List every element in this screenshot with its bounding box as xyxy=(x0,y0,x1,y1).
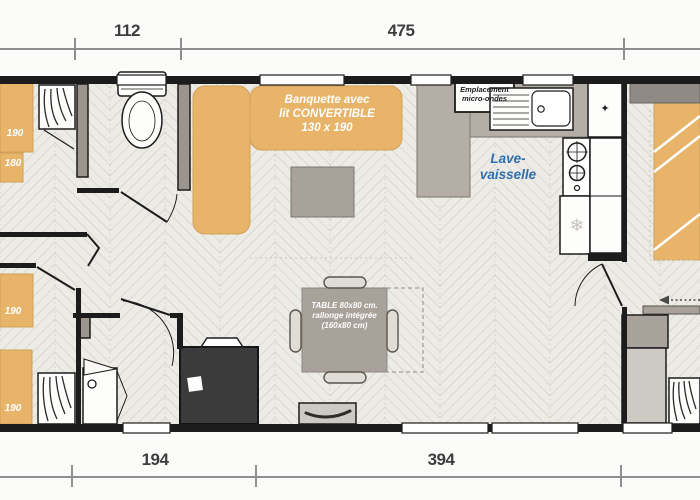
sofa-label-line1: Banquette avec xyxy=(252,93,402,107)
chair-top xyxy=(324,277,366,288)
bed-right xyxy=(654,103,700,260)
wall-top xyxy=(0,76,700,84)
window-bottom-2 xyxy=(623,423,672,433)
window-top-4 xyxy=(523,75,573,85)
window-top-1 xyxy=(117,75,166,85)
bed-mid-left-size: 190 xyxy=(0,306,26,318)
microwave-label: Emplacement micro-ondes xyxy=(456,85,513,104)
chair-left xyxy=(290,310,301,352)
wall-bottom xyxy=(0,424,700,432)
table-label-line2: rallonge intégrée xyxy=(303,311,386,321)
wall-bedroom1-bottom xyxy=(0,232,87,237)
bed-top-left-size: 190 xyxy=(0,128,30,140)
bathroom-wall-right xyxy=(178,84,190,190)
wall-bathroom-bottom xyxy=(77,188,119,193)
toilet-bowl xyxy=(122,92,162,148)
microwave-label-line1: Emplacement xyxy=(456,85,513,94)
window-bottom-1 xyxy=(123,423,170,433)
wall-bedroom-right-upper xyxy=(622,84,627,262)
dishwasher-label-line2: vaisselle xyxy=(453,167,563,183)
chair-bottom xyxy=(324,372,366,383)
stove xyxy=(563,138,590,196)
wall-kitchen-stub xyxy=(588,253,624,261)
wall-shower-right-stub xyxy=(177,313,183,349)
floorplan-drawing: ❄ ✦ xyxy=(0,0,700,500)
sofa-label: Banquette avec lit CONVERTIBLE 130 x 190 xyxy=(252,93,402,135)
entrance-door-panel-1 xyxy=(402,423,488,433)
bed-right-headboard xyxy=(630,82,700,103)
sparkle-icon: ✦ xyxy=(600,102,609,115)
bed-top-left xyxy=(0,78,33,152)
washbasin-unit xyxy=(83,368,117,424)
bed-mid-left xyxy=(0,274,33,327)
chair-right xyxy=(387,310,398,352)
window-top-2 xyxy=(260,75,344,85)
bedroom-right-cabinet xyxy=(622,348,666,423)
wall-bedroom2-top xyxy=(0,263,36,268)
snowflake-icon: ❄ xyxy=(570,216,584,236)
shelf-top-left-size: 180 xyxy=(0,158,26,170)
table-label-line3: (160x80 cm) xyxy=(303,321,386,331)
window-top-3 xyxy=(411,75,451,85)
floorplan-screenshot: 112 475 194 394 xyxy=(0,0,700,500)
bedroom-right-shelf xyxy=(643,306,700,314)
shower-unit-detail xyxy=(187,376,203,392)
wall-bedroom-right-lower xyxy=(622,307,627,424)
table-label: TABLE 80x80 cm. rallonge intégrée (160x8… xyxy=(303,301,386,330)
sofa-label-line2: lit CONVERTIBLE xyxy=(252,107,402,121)
sofa-vertical xyxy=(193,86,250,234)
sofa-label-line3: 130 x 190 xyxy=(252,121,402,135)
microwave-label-line2: micro-ondes xyxy=(456,94,513,103)
bathroom-wall-left xyxy=(77,84,88,177)
dishwasher-label: Lave- vaisselle xyxy=(453,151,563,184)
vanity-basin-dish xyxy=(201,338,243,347)
entrance-door-panel-2 xyxy=(492,423,578,433)
dishwasher-label-line1: Lave- xyxy=(453,151,563,167)
bed-bottom-left-size: 190 xyxy=(0,403,26,415)
wall-shower-left xyxy=(76,288,81,424)
bedroom-right-dresser xyxy=(622,315,668,348)
coffee-table xyxy=(291,167,354,217)
table-label-line1: TABLE 80x80 cm. xyxy=(303,301,386,311)
